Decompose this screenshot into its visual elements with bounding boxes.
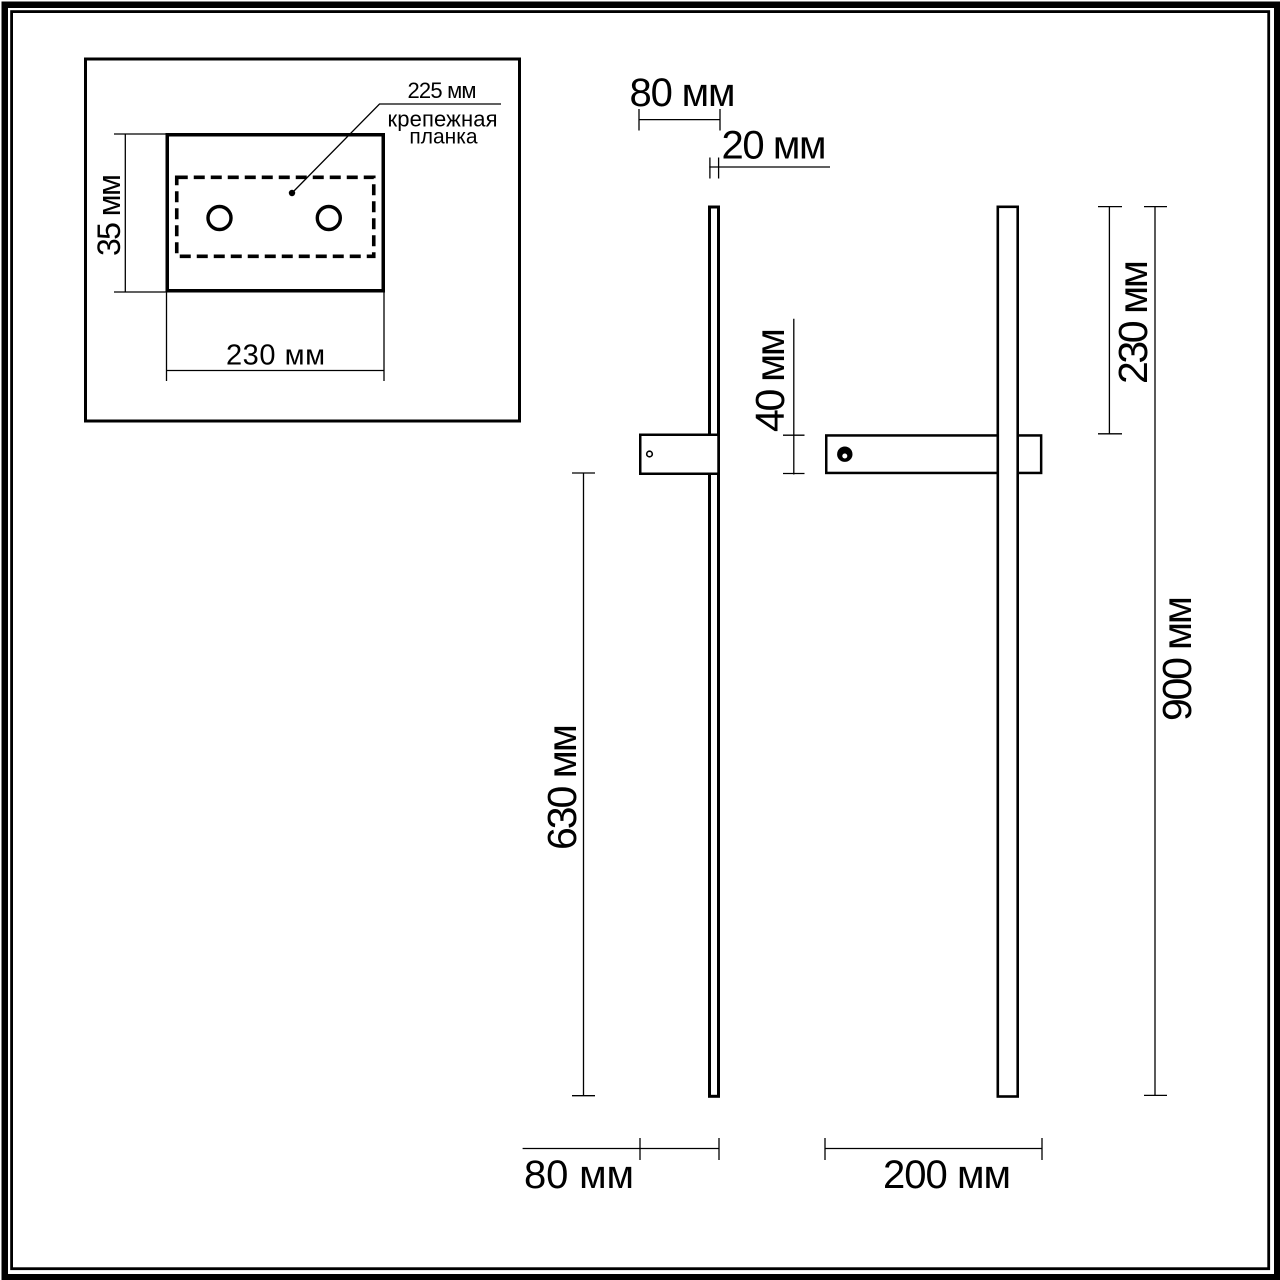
svg-text:80 мм: 80 мм bbox=[524, 1153, 634, 1197]
svg-text:35 мм: 35 мм bbox=[91, 174, 127, 256]
svg-text:80 мм: 80 мм bbox=[630, 71, 736, 115]
svg-text:планка: планка bbox=[409, 126, 478, 149]
svg-text:40 мм: 40 мм bbox=[747, 328, 793, 432]
svg-text:230 мм: 230 мм bbox=[1110, 260, 1156, 384]
svg-text:630 мм: 630 мм bbox=[539, 724, 585, 850]
svg-text:200 мм: 200 мм bbox=[883, 1153, 1011, 1197]
svg-text:20 мм: 20 мм bbox=[722, 124, 827, 168]
svg-text:225 мм: 225 мм bbox=[408, 78, 477, 103]
svg-text:900 мм: 900 мм bbox=[1154, 596, 1200, 721]
svg-text:230 мм: 230 мм bbox=[226, 340, 325, 372]
